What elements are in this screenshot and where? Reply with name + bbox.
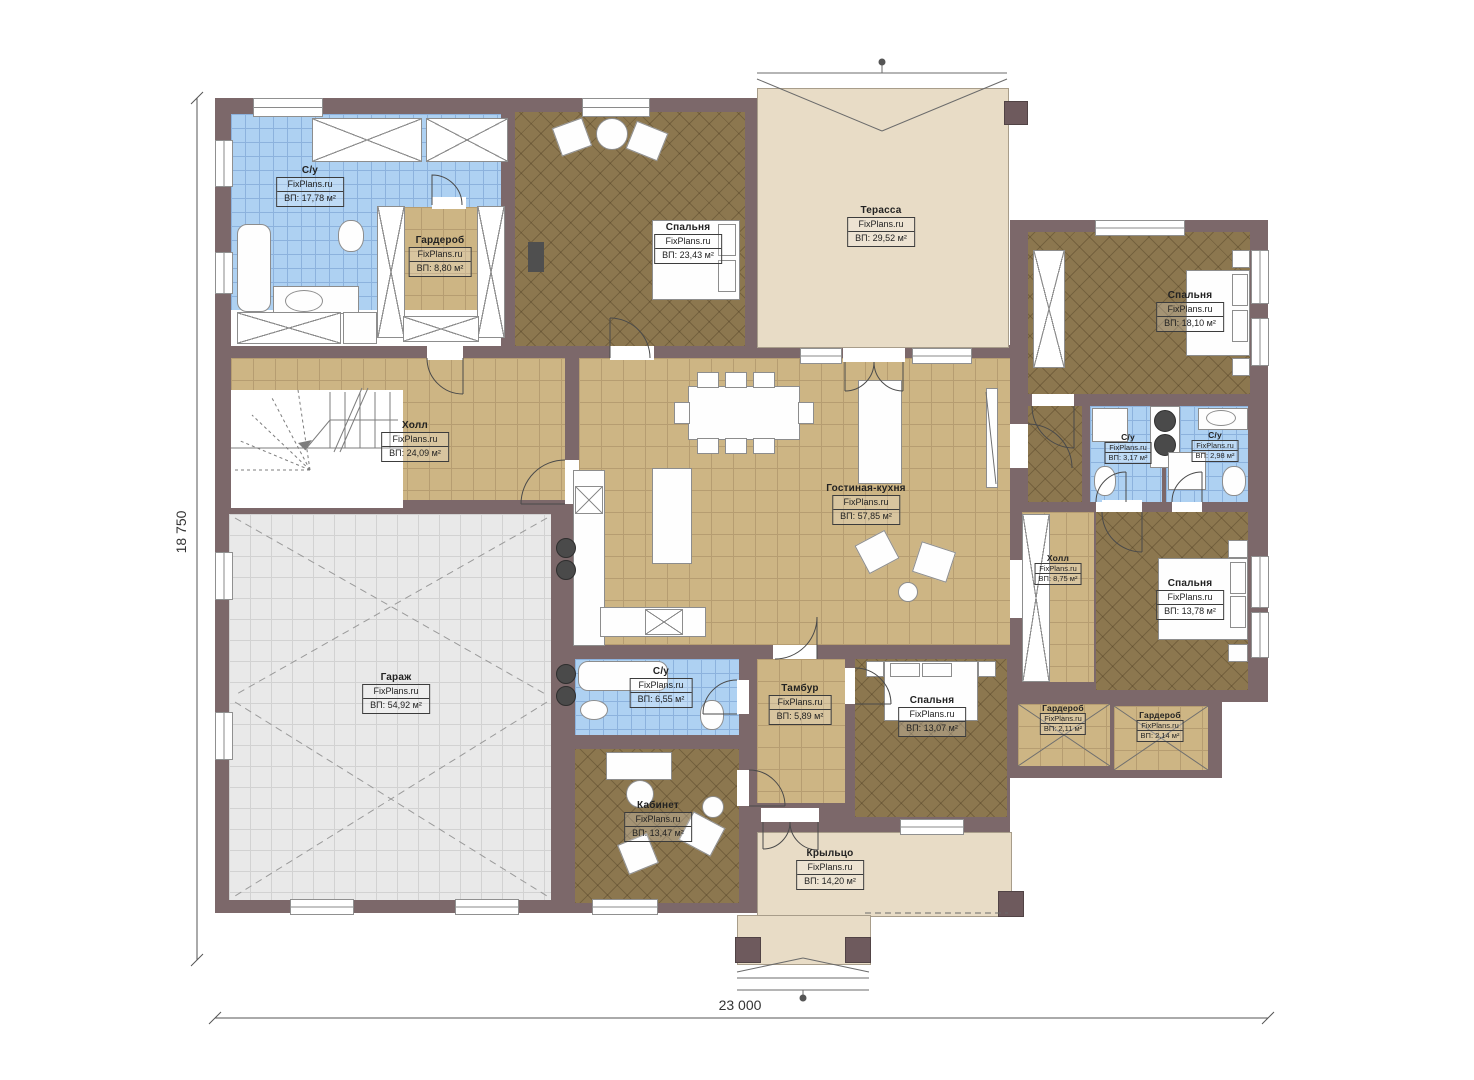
nightstand: [1232, 358, 1250, 376]
watermark: FixPlans.ru: [899, 708, 965, 722]
room-info-box: FixPlans.ru ВП: 13,07 м²: [898, 707, 966, 737]
room-name: С/у: [1208, 430, 1222, 440]
room-label-bedroom-1: Спальня FixPlans.ru ВП: 23,43 м²: [654, 222, 722, 264]
room-info-box: FixPlans.ru ВП: 23,43 м²: [654, 234, 722, 264]
watermark: FixPlans.ru: [833, 496, 899, 510]
door-gap-bathroom-3: [1172, 502, 1202, 512]
washing-machine-icon: [556, 664, 576, 684]
toilet: [700, 700, 724, 730]
watermark: FixPlans.ru: [770, 696, 831, 710]
room-area: ВП: 2,11 м²: [1041, 724, 1085, 733]
floor-corridor-right: [1028, 406, 1082, 502]
room-label-bedroom-3: Спальня FixPlans.ru ВП: 13,78 м²: [1156, 578, 1224, 620]
room-info-box: FixPlans.ru ВП: 5,89 м²: [769, 695, 832, 725]
door-gap-bedroom-1: [610, 346, 654, 360]
room-name: Спальня: [910, 695, 955, 706]
room-name: Гостиная-кухня: [826, 483, 905, 494]
pillow: [890, 663, 920, 677]
window: [290, 899, 354, 915]
room-label-hall-1: Холл FixPlans.ru ВП: 24,09 м²: [381, 420, 449, 462]
room-name: Терасса: [860, 205, 901, 216]
room-area: ВП: 13,47 м²: [625, 827, 691, 840]
nightstand: [1232, 250, 1250, 268]
room-label-bedroom-4: Спальня FixPlans.ru ВП: 13,07 м²: [898, 695, 966, 737]
nightstand: [1228, 644, 1248, 662]
terrace-pillar: [1004, 101, 1028, 125]
watermark: FixPlans.ru: [631, 679, 692, 693]
stove-burner-icon: [556, 538, 576, 558]
door-gap-wardrobe-1: [432, 197, 466, 209]
porch-pillar: [845, 937, 871, 963]
room-name: С/у: [1121, 432, 1135, 442]
chair: [725, 438, 747, 454]
room-info-box: FixPlans.ru ВП: 13,78 м²: [1156, 590, 1224, 620]
room-info-box: FixPlans.ru ВП: 17,78 м²: [276, 177, 344, 207]
window: [215, 140, 233, 187]
desk: [606, 752, 672, 780]
watermark: FixPlans.ru: [655, 235, 721, 249]
room-area: ВП: 24,09 м²: [382, 447, 448, 460]
watermark: FixPlans.ru: [1157, 303, 1223, 317]
room-label-terrace: Терасса FixPlans.ru ВП: 29,52 м²: [847, 205, 915, 247]
door-gap-bathroom-2: [1096, 502, 1126, 512]
round-table: [596, 118, 628, 150]
room-label-tambour: Тамбур FixPlans.ru ВП: 5,89 м²: [769, 683, 832, 725]
room-name: Спальня: [1168, 290, 1213, 301]
toilet: [1222, 466, 1246, 496]
room-info-box: FixPlans.ru ВП: 6,55 м²: [630, 678, 693, 708]
toilet: [1094, 466, 1116, 496]
watermark: FixPlans.ru: [382, 433, 448, 447]
watermark: FixPlans.ru: [797, 861, 863, 875]
sink: [580, 700, 608, 720]
room-name: Тамбур: [781, 683, 818, 694]
closet-shelves: [477, 206, 505, 338]
side-table: [898, 582, 918, 602]
kitchen-island: [652, 468, 692, 564]
room-area: ВП: 14,20 м²: [797, 875, 863, 888]
pillow: [1232, 274, 1248, 306]
window: [1251, 318, 1269, 366]
bathtub: [237, 224, 271, 312]
nightstand: [1228, 540, 1248, 558]
room-name: Гардероб: [1042, 703, 1084, 713]
chair: [697, 372, 719, 388]
door-gap-bathroom-4: [737, 680, 749, 714]
chair: [753, 438, 775, 454]
watermark: FixPlans.ru: [1193, 441, 1238, 451]
window: [1251, 612, 1269, 658]
door-gap-tambour-porch: [761, 808, 819, 822]
door-gap-bathroom-1: [427, 346, 463, 360]
room-name: Гардероб: [1139, 710, 1181, 720]
chair: [674, 402, 690, 424]
washer-cabinet: [312, 118, 422, 162]
kitchen-sink: [575, 486, 603, 514]
window: [582, 98, 650, 117]
watermark: FixPlans.ru: [625, 813, 691, 827]
watermark: FixPlans.ru: [1041, 714, 1085, 724]
closet-shelves: [1022, 514, 1050, 682]
tv-unit: [986, 388, 998, 488]
room-label-bathroom-2: С/у FixPlans.ru ВП: 3,17 м²: [1105, 432, 1152, 464]
stove-burner-icon: [556, 560, 576, 580]
watermark: FixPlans.ru: [363, 685, 429, 699]
room-info-box: FixPlans.ru ВП: 13,47 м²: [624, 812, 692, 842]
watermark: FixPlans.ru: [1106, 443, 1151, 453]
room-area: ВП: 23,43 м²: [655, 249, 721, 262]
window: [1251, 556, 1269, 608]
room-name: Спальня: [1168, 578, 1213, 589]
door-gap-tambour-living: [773, 645, 817, 659]
dimension-height-label: 18 750: [173, 510, 189, 553]
room-area: ВП: 29,52 м²: [848, 232, 914, 245]
room-area: ВП: 2,98 м²: [1193, 451, 1238, 460]
room-label-bathroom-3: С/у FixPlans.ru ВП: 2,98 м²: [1192, 430, 1239, 462]
watermark: FixPlans.ru: [1036, 564, 1081, 574]
chair: [697, 438, 719, 454]
window: [215, 552, 233, 600]
nightstand: [978, 661, 996, 677]
room-label-wardrobe-1: Гардероб FixPlans.ru ВП: 8,80 м²: [409, 235, 472, 277]
room-name: Холл: [1047, 553, 1069, 563]
nightstand: [866, 661, 884, 677]
washing-machine-icon: [556, 686, 576, 706]
watermark: FixPlans.ru: [1157, 591, 1223, 605]
room-area: ВП: 8,80 м²: [410, 262, 471, 275]
room-info-box: FixPlans.ru ВП: 3,17 м²: [1105, 442, 1152, 464]
room-info-box: FixPlans.ru ВП: 2,98 м²: [1192, 440, 1239, 462]
room-name: С/у: [653, 666, 669, 677]
room-info-box: FixPlans.ru ВП: 8,75 м²: [1035, 563, 1082, 585]
window: [900, 819, 964, 835]
window: [215, 712, 233, 760]
watermark: FixPlans.ru: [848, 218, 914, 232]
room-area: ВП: 13,78 м²: [1157, 605, 1223, 618]
window: [215, 252, 233, 294]
window: [253, 98, 323, 117]
washer-cabinet: [426, 118, 508, 162]
room-area: ВП: 3,17 м²: [1106, 453, 1151, 462]
room-info-box: FixPlans.ru ВП: 18,10 м²: [1156, 302, 1224, 332]
room-label-wardrobe-2: Гардероб FixPlans.ru ВП: 2,11 м²: [1040, 703, 1086, 735]
watermark: FixPlans.ru: [277, 178, 343, 192]
room-name: Холл: [402, 420, 428, 431]
watermark: FixPlans.ru: [410, 248, 471, 262]
closet-shelves: [1033, 250, 1065, 368]
room-info-box: FixPlans.ru ВП: 8,80 м²: [409, 247, 472, 277]
toilet: [338, 220, 364, 252]
window: [592, 899, 658, 915]
bath-cabinet: [237, 312, 341, 344]
pillow: [1232, 310, 1248, 342]
room-info-box: FixPlans.ru ВП: 29,52 м²: [847, 217, 915, 247]
window: [800, 348, 842, 364]
porch-pillar: [735, 937, 761, 963]
room-name: Крыльцо: [807, 848, 854, 859]
room-name: Гараж: [381, 672, 412, 683]
door-gap-bedroom-4: [845, 668, 855, 704]
sink: [1206, 410, 1236, 426]
room-name: С/у: [302, 165, 318, 176]
door-gap-office: [737, 770, 749, 806]
room-area: ВП: 57,85 м²: [833, 510, 899, 523]
room-area: ВП: 2,14 м²: [1138, 731, 1183, 740]
sink: [285, 290, 323, 312]
sofa: [858, 380, 902, 484]
chair: [753, 372, 775, 388]
room-area: ВП: 13,07 м²: [899, 722, 965, 735]
closet-shelves: [403, 316, 479, 342]
room-info-box: FixPlans.ru ВП: 57,85 м²: [832, 495, 900, 525]
room-area: ВП: 18,10 м²: [1157, 317, 1223, 330]
room-label-bedroom-2: Спальня FixPlans.ru ВП: 18,10 м²: [1156, 290, 1224, 332]
porch-pillar: [998, 891, 1024, 917]
window: [1095, 220, 1185, 236]
room-label-living-kitchen: Гостиная-кухня FixPlans.ru ВП: 57,85 м²: [826, 483, 905, 525]
room-label-bathroom-4: С/у FixPlans.ru ВП: 6,55 м²: [630, 666, 693, 708]
room-label-porch: Крыльцо FixPlans.ru ВП: 14,20 м²: [796, 848, 864, 890]
room-area: ВП: 17,78 м²: [277, 192, 343, 205]
watermark: FixPlans.ru: [1138, 721, 1183, 731]
oven: [645, 609, 683, 635]
pillow: [718, 260, 736, 292]
room-area: ВП: 54,92 м²: [363, 699, 429, 712]
opening-living-corridor: [1010, 424, 1028, 468]
closet-shelves: [377, 206, 405, 338]
room-info-box: FixPlans.ru ВП: 2,14 м²: [1137, 720, 1184, 742]
room-name: Гардероб: [416, 235, 465, 246]
room-area: ВП: 5,89 м²: [770, 710, 831, 723]
door-gap-terrace: [843, 348, 905, 362]
pillow: [922, 663, 952, 677]
dimension-width-label: 23 000: [719, 997, 762, 1013]
room-info-box: FixPlans.ru ВП: 2,11 м²: [1040, 713, 1086, 735]
room-area: ВП: 8,75 м²: [1036, 574, 1081, 583]
pillow: [1230, 562, 1246, 594]
floor-plan-canvas: 18 750 23 000 С/у FixPlans.ru ВП: 17,78 …: [0, 0, 1474, 1080]
room-label-wardrobe-3: Гардероб FixPlans.ru ВП: 2,14 м²: [1137, 710, 1184, 742]
floor-tambour: [757, 659, 845, 803]
chair: [725, 372, 747, 388]
room-label-office: Кабинет FixPlans.ru ВП: 13,47 м²: [624, 800, 692, 842]
room-area: ВП: 6,55 м²: [631, 693, 692, 706]
chair: [798, 402, 814, 424]
window: [912, 348, 972, 364]
window: [455, 899, 519, 915]
round-table: [702, 796, 724, 818]
room-info-box: FixPlans.ru ВП: 54,92 м²: [362, 684, 430, 714]
room-label-bathroom-1: С/у FixPlans.ru ВП: 17,78 м²: [276, 165, 344, 207]
window: [1251, 250, 1269, 304]
room-info-box: FixPlans.ru ВП: 24,09 м²: [381, 432, 449, 462]
staircase: [231, 390, 403, 508]
shower: [343, 312, 377, 344]
dresser: [528, 242, 544, 272]
pillow: [1230, 596, 1246, 628]
dining-table: [688, 386, 800, 440]
room-info-box: FixPlans.ru ВП: 14,20 м²: [796, 860, 864, 890]
room-label-garage: Гараж FixPlans.ru ВП: 54,92 м²: [362, 672, 430, 714]
room-name: Спальня: [666, 222, 711, 233]
room-label-hall-2: Холл FixPlans.ru ВП: 8,75 м²: [1035, 553, 1082, 585]
room-name: Кабинет: [637, 800, 679, 811]
washing-machine-icon: [1154, 410, 1176, 432]
door-gap-bedroom-2: [1032, 394, 1074, 406]
